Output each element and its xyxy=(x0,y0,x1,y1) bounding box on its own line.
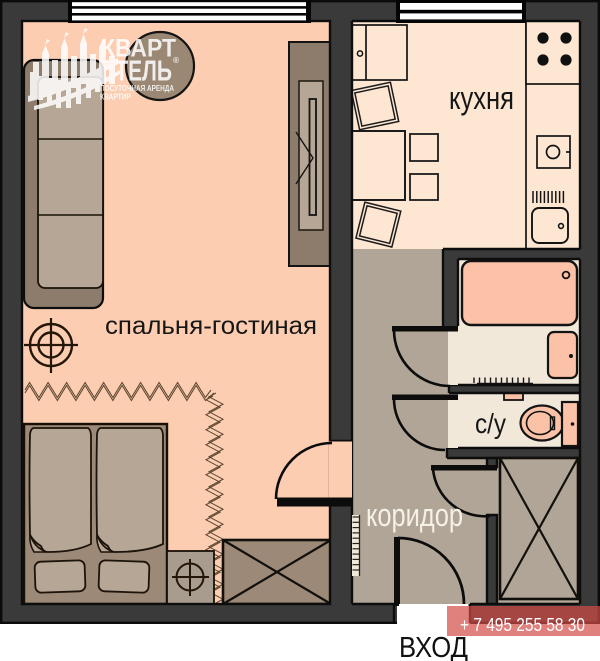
svg-text:с/у: с/у xyxy=(475,408,506,439)
svg-text:®: ® xyxy=(173,56,179,65)
svg-text:коридор: коридор xyxy=(366,497,463,533)
svg-text:ВХОД: ВХОД xyxy=(399,632,468,661)
svg-text:кухня: кухня xyxy=(449,80,514,116)
svg-text:+ 7 495 255 58 30: + 7 495 255 58 30 xyxy=(460,614,585,635)
svg-text:спальня-гостиная: спальня-гостиная xyxy=(105,312,317,340)
svg-text:КВАРТИР: КВАРТИР xyxy=(100,93,132,102)
